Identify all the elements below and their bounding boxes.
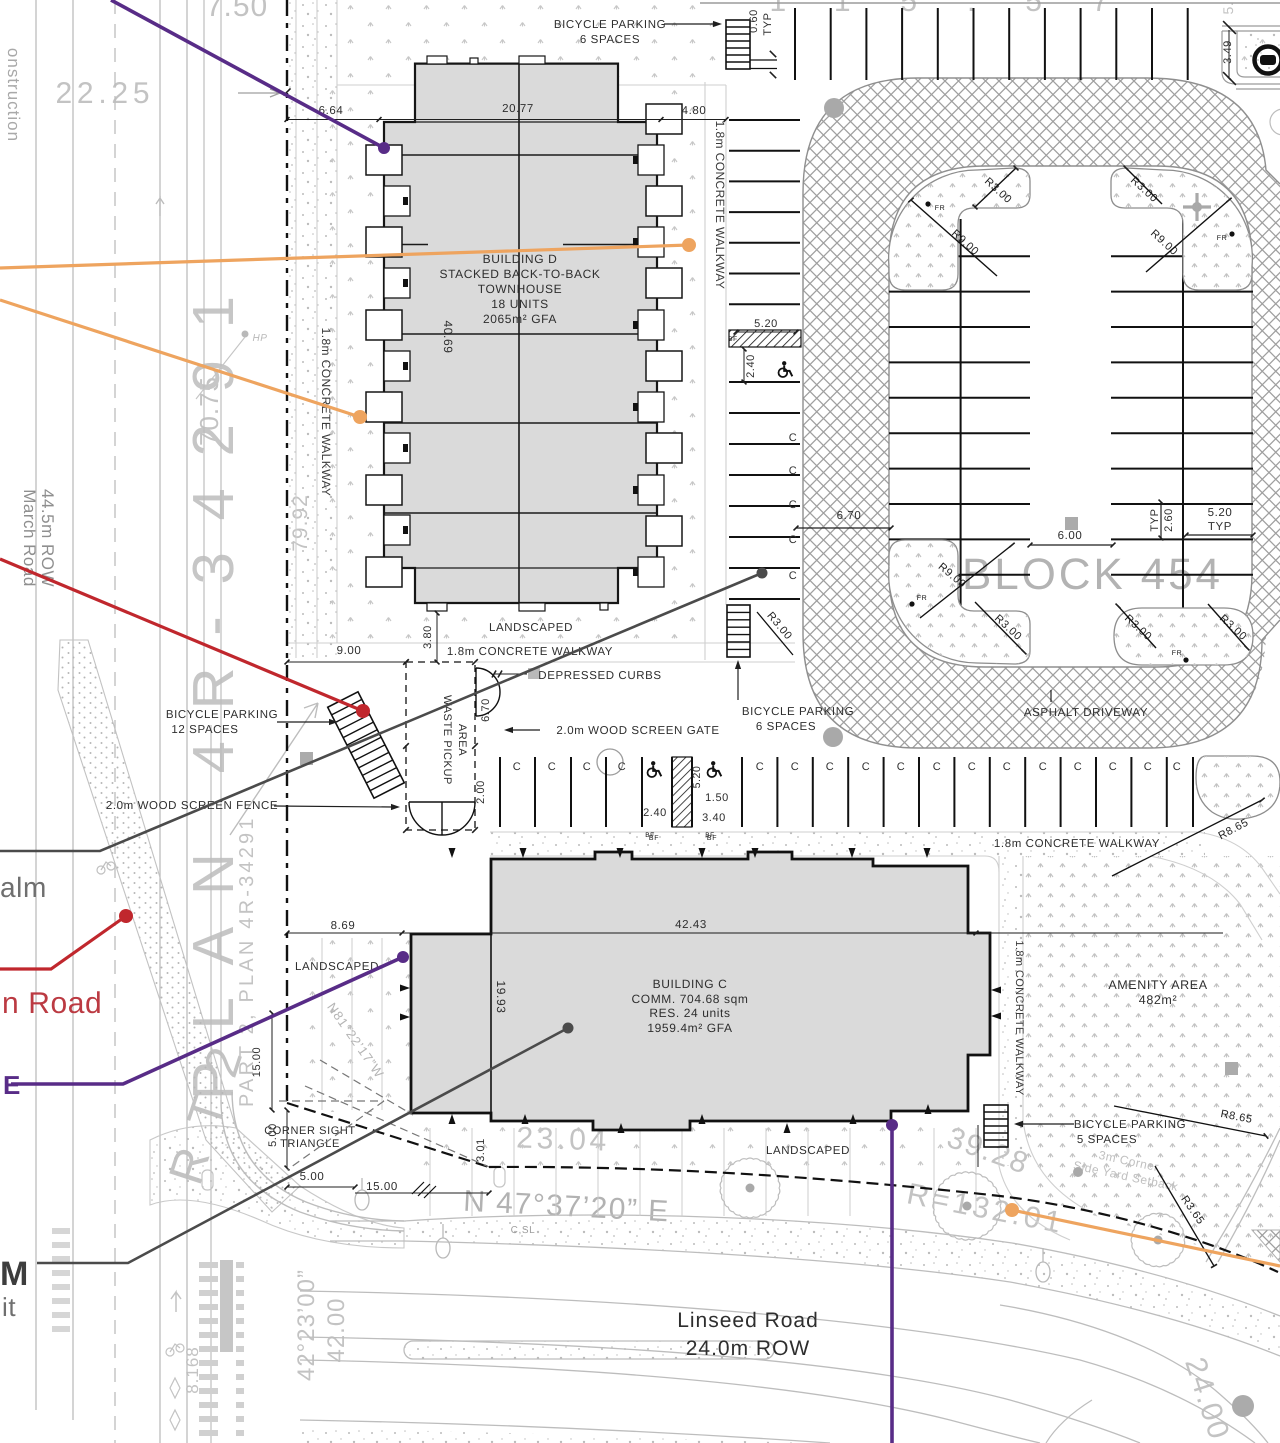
- svg-text:TYP: TYP: [1208, 521, 1232, 533]
- svg-text:C: C: [1109, 761, 1118, 773]
- svg-text:BF: BF: [649, 835, 659, 842]
- svg-text:C: C: [789, 465, 798, 477]
- svg-text:1959.4m² GFA: 1959.4m² GFA: [647, 1021, 732, 1035]
- svg-text:LANDSCAPED: LANDSCAPED: [295, 961, 379, 973]
- svg-text:LANDSCAPED: LANDSCAPED: [489, 622, 573, 634]
- svg-text:BICYCLE PARKING: BICYCLE PARKING: [1074, 1119, 1186, 1131]
- svg-text:2.0m WOOD SCREEN GATE: 2.0m WOOD SCREEN GATE: [556, 725, 719, 737]
- svg-text:C: C: [1144, 761, 1153, 773]
- svg-text:FR: FR: [1217, 235, 1228, 242]
- svg-text:4.80: 4.80: [682, 105, 707, 117]
- svg-text:5 SPACES: 5 SPACES: [1077, 1134, 1137, 1146]
- svg-text:6.70: 6.70: [480, 698, 492, 722]
- svg-text:1.8m CONCRETE WALKWAY: 1.8m CONCRETE WALKWAY: [1013, 940, 1025, 1096]
- svg-text:6 SPACES: 6 SPACES: [756, 721, 816, 733]
- svg-text:9.00: 9.00: [337, 645, 362, 657]
- svg-text:12 SPACES: 12 SPACES: [171, 724, 238, 736]
- svg-text:42°23’00”: 42°23’00”: [293, 1269, 320, 1381]
- svg-text:1.8m CONCRETE WALKWAY: 1.8m CONCRETE WALKWAY: [994, 838, 1160, 850]
- svg-text:Linseed Road: Linseed Road: [677, 1309, 819, 1332]
- svg-text:482m²: 482m²: [1139, 993, 1177, 1007]
- svg-text:COMM. 704.68 sqm: COMM. 704.68 sqm: [632, 992, 749, 1006]
- svg-text:BICYCLE PARKING: BICYCLE PARKING: [166, 709, 278, 721]
- svg-text:40.69: 40.69: [441, 320, 455, 353]
- svg-text:2.40: 2.40: [745, 354, 757, 378]
- svg-text:C: C: [789, 570, 798, 582]
- svg-text:C: C: [618, 761, 627, 773]
- svg-text:2.40: 2.40: [643, 807, 667, 819]
- svg-text:6.70: 6.70: [837, 510, 862, 522]
- svg-text:18 UNITS: 18 UNITS: [491, 297, 548, 311]
- svg-text:1.50: 1.50: [705, 792, 729, 804]
- svg-text:AREA: AREA: [456, 724, 468, 756]
- svg-text:24.0m ROW: 24.0m ROW: [686, 1337, 811, 1360]
- svg-text:BF: BF: [707, 835, 717, 842]
- svg-text:ASPHALT DRIVEWAY: ASPHALT DRIVEWAY: [1024, 707, 1148, 719]
- svg-text:C: C: [1074, 761, 1083, 773]
- svg-text:TYP: TYP: [1149, 508, 1161, 531]
- svg-text:5.20: 5.20: [754, 318, 778, 330]
- svg-text:C: C: [968, 761, 977, 773]
- svg-text:6 SPACES: 6 SPACES: [580, 34, 640, 46]
- svg-text:22.25: 22.25: [56, 77, 151, 110]
- svg-text:E: E: [3, 1070, 21, 1100]
- svg-text:15.00: 15.00: [366, 1181, 398, 1193]
- svg-text:STACKED BACK-TO-BACK: STACKED BACK-TO-BACK: [440, 267, 601, 281]
- svg-text:LANDSCAPED: LANDSCAPED: [766, 1145, 850, 1157]
- svg-text:BF: BF: [728, 336, 738, 343]
- svg-text:BICYCLE PARKING: BICYCLE PARKING: [554, 19, 666, 31]
- svg-text:it: it: [2, 1292, 16, 1322]
- svg-text:2.0m WOOD SCREEN FENCE: 2.0m WOOD SCREEN FENCE: [106, 800, 278, 812]
- svg-text:FR: FR: [917, 595, 928, 602]
- svg-text:C: C: [789, 534, 798, 546]
- svg-text:2065m² GFA: 2065m² GFA: [483, 312, 557, 326]
- svg-text:WASTE PICKUP: WASTE PICKUP: [441, 695, 453, 785]
- svg-text:BICYCLE PARKING: BICYCLE PARKING: [742, 706, 854, 718]
- svg-text:TYP: TYP: [762, 12, 774, 35]
- svg-text:3.49: 3.49: [1222, 40, 1234, 64]
- svg-text:C: C: [1003, 761, 1012, 773]
- svg-text:8.69: 8.69: [331, 920, 356, 932]
- svg-text:2.00: 2.00: [475, 780, 487, 804]
- svg-text:C: C: [548, 761, 557, 773]
- svg-text:C: C: [756, 761, 765, 773]
- svg-text:CORNER SIGHT: CORNER SIGHT: [264, 1125, 356, 1137]
- svg-text:HP: HP: [252, 333, 267, 344]
- svg-text:44.5m ROW: 44.5m ROW: [38, 489, 57, 587]
- svg-text:onstruction: onstruction: [4, 48, 23, 142]
- svg-text:alm: alm: [0, 872, 47, 903]
- svg-text:1.8m CONCRETE WALKWAY: 1.8m CONCRETE WALKWAY: [447, 646, 613, 658]
- svg-text:C: C: [791, 761, 800, 773]
- svg-text:3.80: 3.80: [422, 625, 434, 649]
- svg-text:M: M: [0, 1255, 29, 1293]
- svg-text:n Road: n Road: [2, 987, 102, 1020]
- svg-text:42.00: 42.00: [323, 1297, 350, 1362]
- svg-text:5.20: 5.20: [1208, 507, 1233, 519]
- svg-text:20.77: 20.77: [502, 103, 534, 115]
- svg-text:TRIANGLE: TRIANGLE: [280, 1138, 340, 1150]
- svg-text:7.50: 7.50: [206, 0, 268, 23]
- svg-text:DEPRESSED CURBS: DEPRESSED CURBS: [538, 670, 661, 682]
- svg-text:C: C: [862, 761, 871, 773]
- svg-text:3.01: 3.01: [475, 1138, 487, 1162]
- svg-text:C: C: [897, 761, 906, 773]
- svg-text:C: C: [789, 432, 798, 444]
- svg-text:AMENITY AREA: AMENITY AREA: [1108, 978, 1207, 992]
- svg-text:2.60: 2.60: [1163, 508, 1175, 532]
- svg-text:C: C: [826, 761, 835, 773]
- svg-text:6.00: 6.00: [1058, 530, 1083, 542]
- svg-text:19.93: 19.93: [494, 980, 508, 1013]
- svg-text:C: C: [789, 499, 798, 511]
- svg-text:C,SL: C,SL: [511, 1225, 536, 1236]
- svg-text:C: C: [513, 761, 522, 773]
- svg-text:5.00: 5.00: [300, 1171, 325, 1183]
- svg-text:1.8m CONCRETE WALKWAY: 1.8m CONCRETE WALKWAY: [713, 121, 727, 290]
- svg-text:C: C: [583, 761, 592, 773]
- svg-text:TOWNHOUSE: TOWNHOUSE: [478, 282, 563, 296]
- svg-text:C: C: [1039, 761, 1048, 773]
- svg-text:RES. 24 units: RES. 24 units: [649, 1006, 730, 1020]
- svg-text:BUILDING C: BUILDING C: [653, 977, 728, 991]
- svg-text:42.43: 42.43: [675, 919, 707, 931]
- svg-text:1.8m CONCRETE WALKWAY: 1.8m CONCRETE WALKWAY: [319, 328, 333, 497]
- svg-text:BUILDING D: BUILDING D: [483, 252, 558, 266]
- svg-text:5.20: 5.20: [691, 766, 703, 789]
- svg-text:8.168: 8.168: [183, 1346, 202, 1394]
- svg-text:C: C: [1173, 761, 1182, 773]
- svg-text:FR: FR: [935, 205, 946, 212]
- svg-text:3.40: 3.40: [702, 812, 726, 824]
- svg-text:15.00: 15.00: [251, 1047, 263, 1078]
- svg-text:FR: FR: [1172, 650, 1183, 657]
- svg-text:0.60: 0.60: [748, 9, 760, 33]
- svg-text:C: C: [933, 761, 942, 773]
